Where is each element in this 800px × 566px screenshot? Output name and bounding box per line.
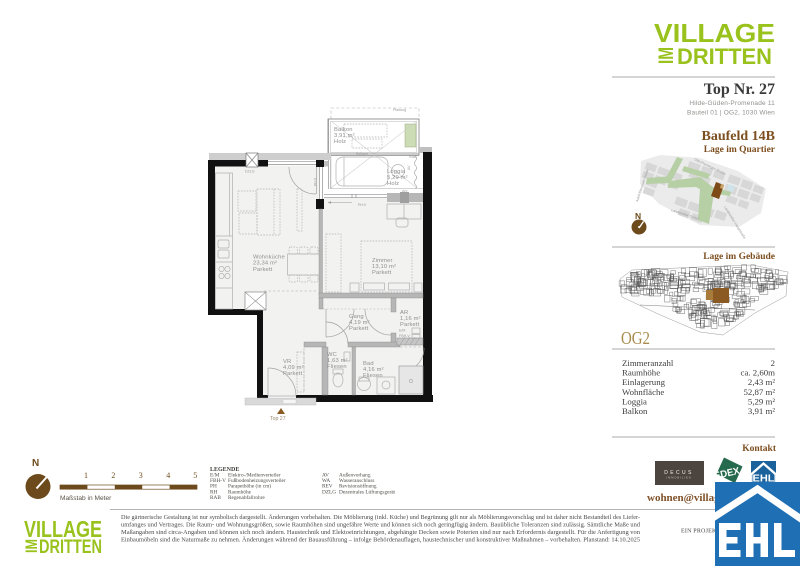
svg-text:1: 1	[84, 471, 88, 480]
svg-text:4: 4	[166, 471, 170, 480]
svg-text:3: 3	[139, 471, 143, 480]
svg-text:Lage im Quartier: Lage im Quartier	[704, 145, 776, 155]
svg-text:Einlagerung: Einlagerung	[622, 377, 666, 387]
svg-text:3,91 m²: 3,91 m²	[748, 406, 775, 416]
svg-text:2: 2	[771, 358, 775, 368]
svg-text:PH:0: PH:0	[314, 178, 318, 186]
svg-text:N: N	[635, 211, 641, 221]
svg-text:Baufeld 14B: Baufeld 14B	[701, 129, 775, 144]
svg-text:Raumhöhe: Raumhöhe	[622, 368, 660, 378]
svg-text:Fliesen: Fliesen	[327, 364, 347, 370]
svg-text:PH:0: PH:0	[358, 203, 366, 207]
svg-text:Kontakt: Kontakt	[742, 444, 777, 454]
svg-text:52,87 m²: 52,87 m²	[744, 387, 776, 397]
svg-text:Holz: Holz	[334, 139, 346, 145]
svg-text:OG2: OG2	[621, 328, 650, 348]
svg-text:Top 27: Top 27	[270, 416, 286, 422]
svg-text:Zimmeranzahl: Zimmeranzahl	[622, 358, 674, 368]
svg-text:IMMOBILIEN: IMMOBILIEN	[666, 476, 691, 480]
svg-text:Fliesen: Fliesen	[363, 373, 383, 379]
svg-text:5: 5	[193, 471, 197, 480]
svg-text:DRITTEN: DRITTEN	[677, 44, 772, 69]
svg-text:Parkett: Parkett	[400, 322, 420, 328]
svg-text:2,43 m²: 2,43 m²	[748, 377, 775, 387]
svg-text:Lage im Gebäude: Lage im Gebäude	[703, 252, 775, 262]
svg-text:E/M: E/M	[399, 329, 405, 333]
svg-text:RAB: RAB	[409, 155, 417, 159]
svg-text:Dezentrales Lüftungsgerät: Dezentrales Lüftungsgerät	[339, 488, 396, 495]
svg-text:2: 2	[111, 471, 115, 480]
svg-text:Bauteil 01 | OG2, 1030 Wien: Bauteil 01 | OG2, 1030 Wien	[687, 110, 775, 117]
svg-text:Loggia: Loggia	[622, 396, 647, 406]
svg-text:Maßangaben sind circa-Angaben: Maßangaben sind circa-Angaben und können…	[121, 529, 641, 536]
svg-text:N: N	[32, 458, 39, 469]
svg-text:AV: AV	[407, 165, 411, 170]
svg-text:FBH-V: FBH-V	[399, 334, 410, 338]
svg-text:Top Nr. 27: Top Nr. 27	[704, 81, 775, 98]
svg-text:Raffstore: Raffstore	[356, 152, 368, 156]
svg-text:Die gärtnerische Gestaltung is: Die gärtnerische Gestaltung ist nur symb…	[121, 514, 640, 521]
svg-text:23,34 m²: 23,34 m²	[253, 261, 277, 267]
svg-text:Einbaumöbeln sind die Naturmaß: Einbaumöbeln sind die Naturmaße zu nehme…	[121, 537, 640, 544]
svg-text:Balkon: Balkon	[622, 406, 648, 416]
svg-text:Planung: Planung	[393, 108, 406, 112]
svg-text:EDEX: EDEX	[713, 466, 741, 483]
svg-text:IM: IM	[22, 539, 41, 553]
svg-text:Parkett: Parkett	[372, 270, 392, 276]
svg-text:Parkett: Parkett	[349, 326, 369, 332]
svg-text:DECUS: DECUS	[664, 470, 694, 476]
svg-text:W3: W3	[402, 190, 407, 194]
svg-text:DZLG: DZLG	[322, 489, 336, 495]
svg-text:Wohnküche: Wohnküche	[253, 255, 285, 261]
svg-text:5,29 m²: 5,29 m²	[748, 396, 775, 406]
svg-text:Wohnfläche: Wohnfläche	[622, 387, 664, 397]
svg-text:Hilde-Güden-Promenade 11: Hilde-Güden-Promenade 11	[689, 100, 775, 107]
svg-text:umfanges und Vertrages. Die Ra: umfanges und Vertrages. Die Raum- und Wo…	[121, 522, 641, 529]
svg-text:IM: IM	[655, 47, 678, 64]
svg-text:Maßstab in Meter: Maßstab in Meter	[60, 495, 112, 502]
svg-text:Parkett: Parkett	[253, 267, 273, 273]
svg-text:Holz: Holz	[387, 181, 399, 187]
svg-text:ca. 2,60m: ca. 2,60m	[741, 368, 776, 378]
svg-text:Regenabfallrohre: Regenabfallrohre	[228, 494, 265, 501]
svg-text:DZLG: DZLG	[245, 170, 255, 174]
svg-text:DRITTEN: DRITTEN	[39, 537, 102, 558]
svg-text:RAB: RAB	[210, 495, 221, 501]
svg-text:Parkett: Parkett	[283, 371, 303, 377]
